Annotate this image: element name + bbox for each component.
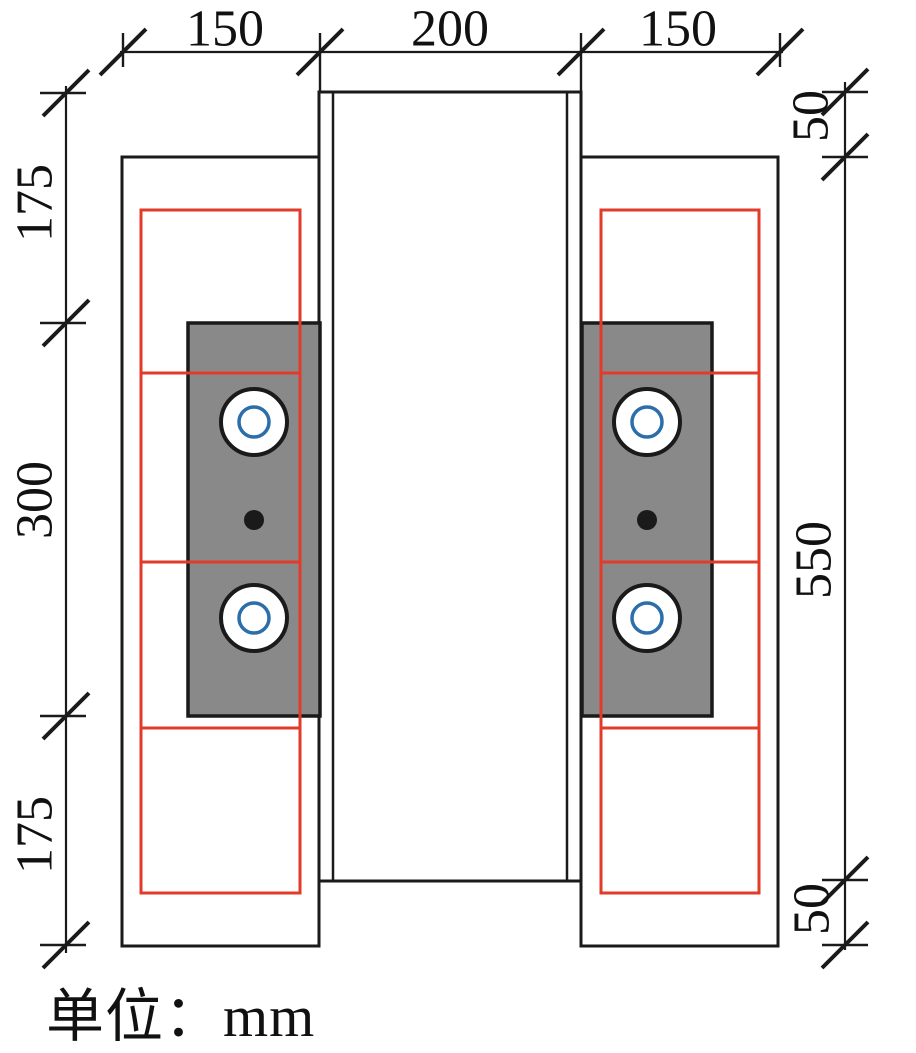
dimension-label-right-1: 50 <box>783 90 840 142</box>
dimension-label-left-3: 175 <box>7 796 64 874</box>
dimension-label-left-1: 175 <box>7 164 64 242</box>
column <box>319 92 581 881</box>
bolt-hole-3 <box>614 389 680 455</box>
bolt-hole-1 <box>221 389 287 455</box>
dimension-label-right-2: 550 <box>786 521 843 599</box>
dimension-label-top-1: 150 <box>186 1 264 58</box>
dimension-label-right-3: 50 <box>784 883 841 935</box>
units-caption: 单位：mm <box>46 969 315 1053</box>
drawing-canvas: 1502001501753001755055050 <box>0 0 916 1053</box>
dimension-label-top-3: 150 <box>639 1 717 58</box>
engineering-drawing: 1502001501753001755055050 <box>0 0 916 1053</box>
bolt-hole-2 <box>221 585 287 651</box>
center-dot-1 <box>244 510 264 530</box>
bolt-hole-4 <box>614 585 680 651</box>
center-dot-2 <box>637 510 657 530</box>
dimension-label-top-2: 200 <box>411 1 489 58</box>
dimension-label-left-2: 300 <box>7 461 64 539</box>
